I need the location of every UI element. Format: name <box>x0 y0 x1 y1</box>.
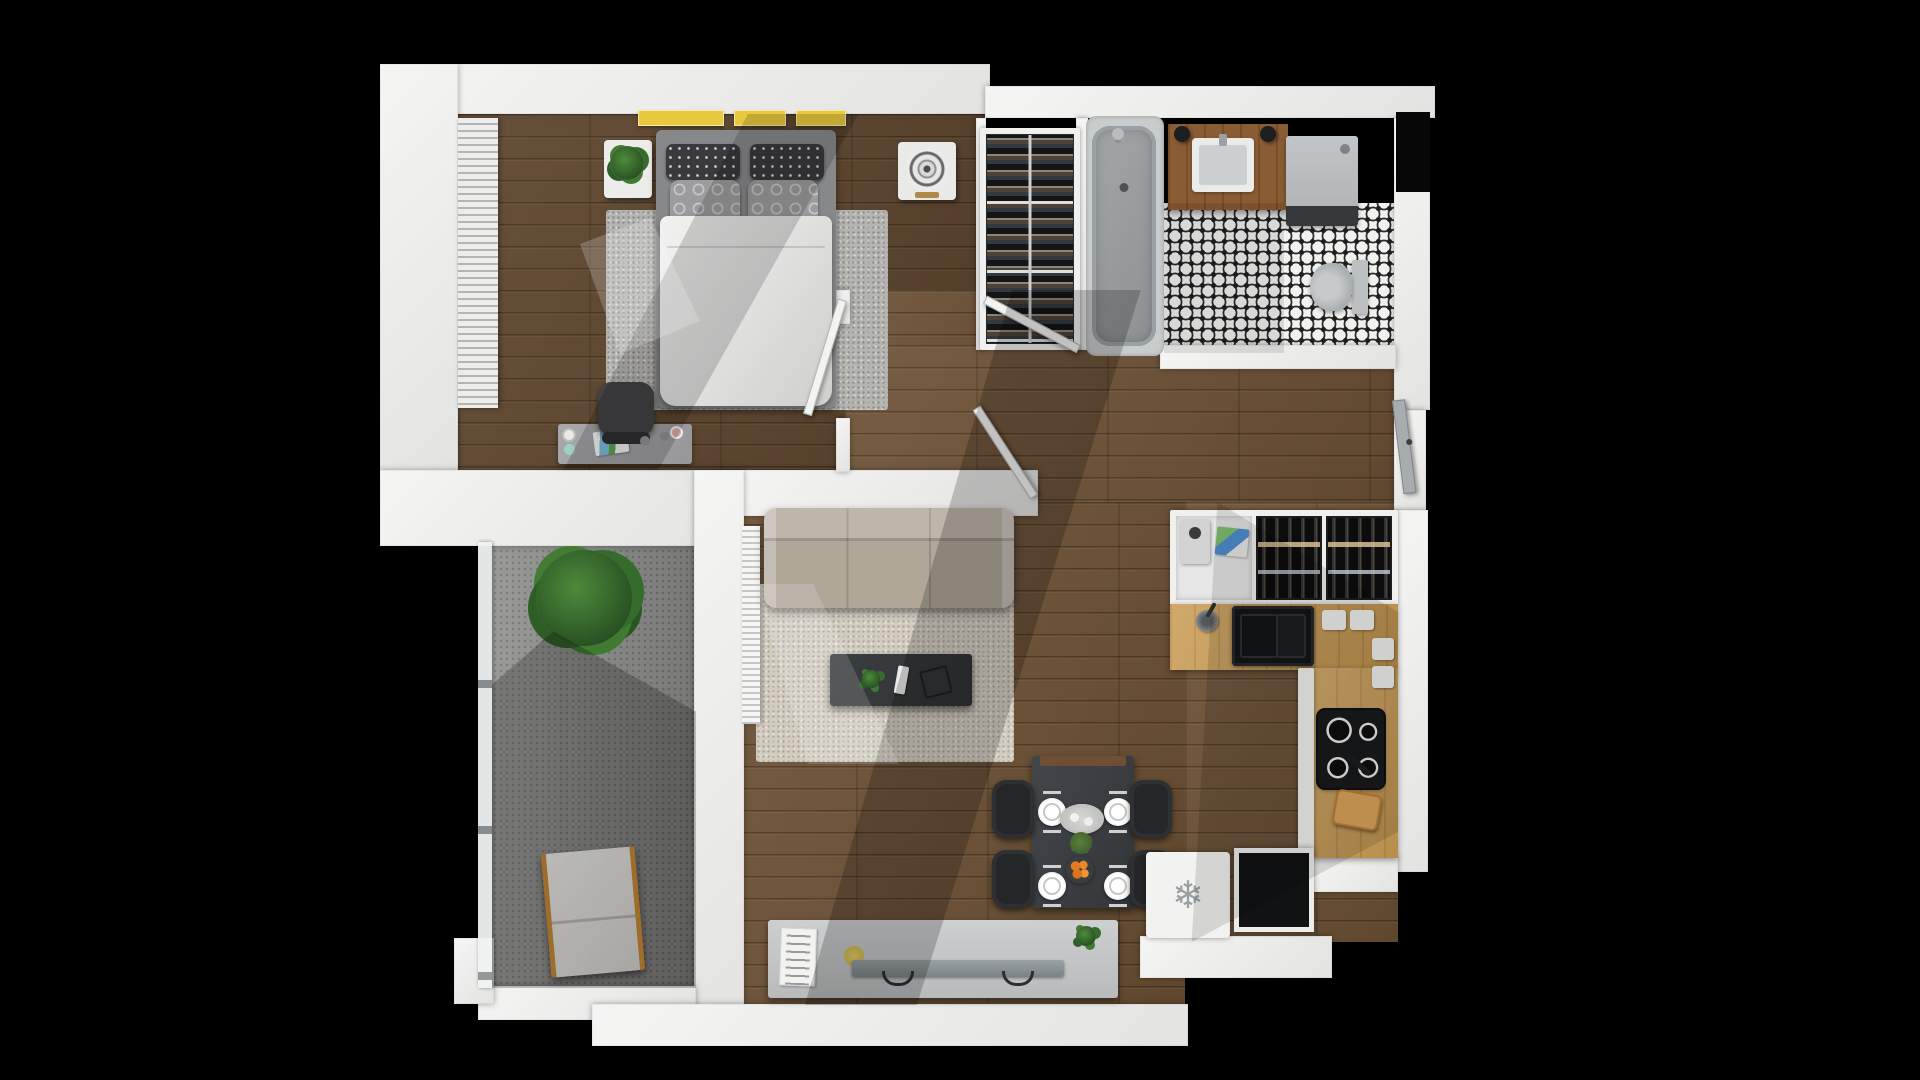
shelf-books-2 <box>734 110 786 126</box>
tv-screen <box>852 960 1064 976</box>
shaft-niche <box>1396 112 1430 192</box>
nightstand-plant <box>610 146 644 180</box>
desk-disc-2 <box>564 444 575 455</box>
wall-bedroom-bottom <box>380 470 726 546</box>
wall-top-left <box>380 64 990 114</box>
recipe-card <box>1215 526 1250 557</box>
toilet <box>1310 260 1368 314</box>
wall-stub-bedroom-door-lower <box>836 418 850 472</box>
kitchen-faucet <box>1196 610 1218 632</box>
trivet-4 <box>1372 666 1394 688</box>
lounge-chair <box>541 846 645 978</box>
serving-platter <box>1060 804 1104 834</box>
washer <box>1286 136 1358 226</box>
plate-bottom-right <box>1104 872 1132 900</box>
shelf-books-3 <box>796 110 846 126</box>
plate-top-right <box>1104 798 1132 826</box>
dining-runner <box>1040 756 1126 766</box>
dining-chair-3 <box>992 850 1034 908</box>
desk-knob-1 <box>640 436 650 446</box>
tv-console <box>768 920 1118 998</box>
sconce-right <box>1260 126 1276 142</box>
oranges-plate <box>1066 856 1094 884</box>
sconce-left <box>1174 126 1190 142</box>
cutting-board <box>1331 788 1383 831</box>
wall-right-kitchen <box>1396 510 1428 872</box>
desk-knob-2 <box>660 432 669 441</box>
kitchen-sink <box>1232 606 1314 666</box>
dining-chair-2 <box>1130 780 1172 838</box>
wall-top-right <box>985 86 1435 118</box>
wine-rack-left <box>1256 516 1322 600</box>
console-poster <box>779 927 817 986</box>
shelf-books-1 <box>638 110 724 126</box>
bathtub <box>1092 126 1156 346</box>
freezer-box: ❄ <box>1146 852 1230 938</box>
wall-left-bedroom <box>380 64 458 472</box>
espresso-machine <box>1180 520 1210 564</box>
nightstand-fan <box>898 142 956 200</box>
desk-disc-1 <box>562 428 576 442</box>
coffee-table-plant <box>862 670 880 688</box>
cooktop <box>1318 710 1384 788</box>
pillow-dark-right <box>750 144 824 180</box>
trivet-1 <box>1322 610 1346 630</box>
balcony-plant <box>536 550 632 646</box>
wall-balcony-divider <box>694 470 744 1020</box>
wall-bathroom-bottom <box>1160 345 1396 369</box>
wall-bottom-right-step <box>1140 936 1332 978</box>
table-flowers <box>1070 832 1092 854</box>
wine-rack-right <box>1326 516 1392 600</box>
desk-knob-3 <box>672 428 681 437</box>
floor-plan-stage: ❄ <box>0 0 1920 1080</box>
balcony-glass-wall <box>478 542 492 988</box>
wall-living-bottom <box>592 1004 1188 1046</box>
window-blinds-bedroom <box>458 118 498 408</box>
wall-bottom-right-corner <box>1314 856 1398 892</box>
dining-chair-1 <box>992 780 1034 838</box>
office-chair <box>598 382 654 436</box>
bed-duvet <box>660 216 832 406</box>
radiator <box>742 526 760 724</box>
bath-faucet <box>1112 128 1124 140</box>
bath-sink <box>1192 138 1254 192</box>
console-plant <box>1076 926 1096 946</box>
cabinet-strip <box>1298 668 1314 858</box>
trivet-3 <box>1372 638 1394 660</box>
sofa <box>764 508 1014 608</box>
plate-bottom-left <box>1038 872 1066 900</box>
pillow-dark-left <box>666 144 740 180</box>
trivet-2 <box>1350 610 1374 630</box>
dark-appliance <box>1234 848 1314 932</box>
